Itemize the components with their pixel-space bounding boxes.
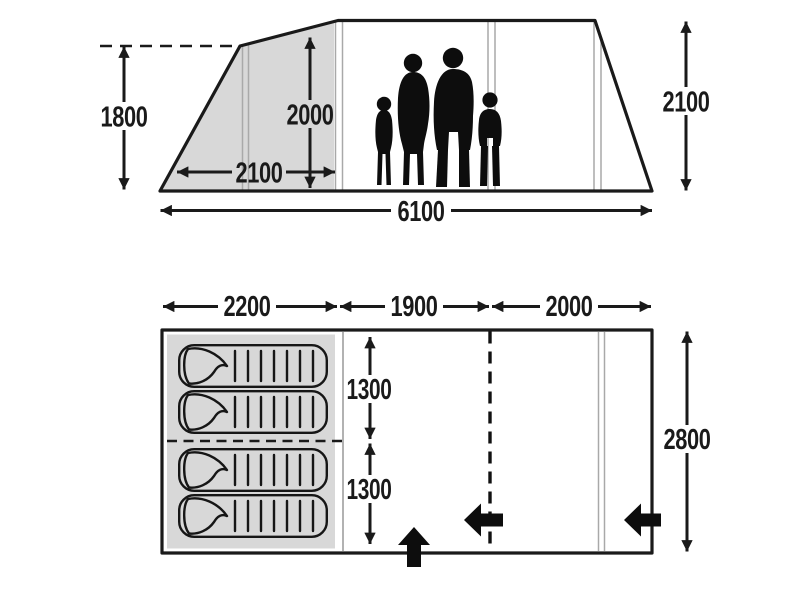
floor-plan-view: 2200 1900 2000 1300 1300 2800 <box>162 291 711 567</box>
dim-bedroom-half-lower: 1300 <box>347 444 392 545</box>
entrance-arrow-front <box>398 527 430 567</box>
dim-total-width: 2800 <box>664 332 711 552</box>
dim-total-length: 6100 <box>161 196 653 228</box>
dim-bedroom-length: 2200 <box>163 291 337 323</box>
dim-label-bedroom-half-upper: 1300 <box>347 374 392 406</box>
entrance-arrow-side <box>624 504 661 537</box>
person-man <box>434 48 474 187</box>
dim-rear-height: 2100 <box>663 22 710 191</box>
dim-living-length: 1900 <box>340 291 489 323</box>
person-boy <box>478 92 501 186</box>
dim-label-bedroom-length: 2200 <box>224 291 271 323</box>
dim-front-length: 2000 <box>492 291 651 323</box>
dim-label-total-width: 2800 <box>664 424 711 456</box>
person-woman <box>398 54 430 185</box>
dim-label-bedroom-depth: 2100 <box>236 158 283 190</box>
dim-label-front-length: 2000 <box>546 291 593 323</box>
dim-label-bedroom-half-lower: 1300 <box>347 474 392 506</box>
dim-label-total-length: 6100 <box>398 196 445 228</box>
family-silhouette <box>375 48 501 187</box>
dim-label-front-height: 1800 <box>101 102 148 134</box>
side-elevation-view: 1800 2000 2100 6100 2100 <box>100 18 710 228</box>
dim-label-inner-height: 2000 <box>287 100 334 132</box>
entrance-arrows <box>398 504 661 568</box>
dim-front-height: 1800 <box>101 47 148 190</box>
dim-label-living-length: 1900 <box>391 291 438 323</box>
entrance-arrow-inner-door <box>464 504 503 537</box>
person-girl <box>375 97 392 185</box>
dim-label-rear-height: 2100 <box>663 87 710 119</box>
dim-bedroom-half-upper: 1300 <box>347 337 392 439</box>
tent-dimensions-diagram: 1800 2000 2100 6100 2100 <box>0 0 800 600</box>
